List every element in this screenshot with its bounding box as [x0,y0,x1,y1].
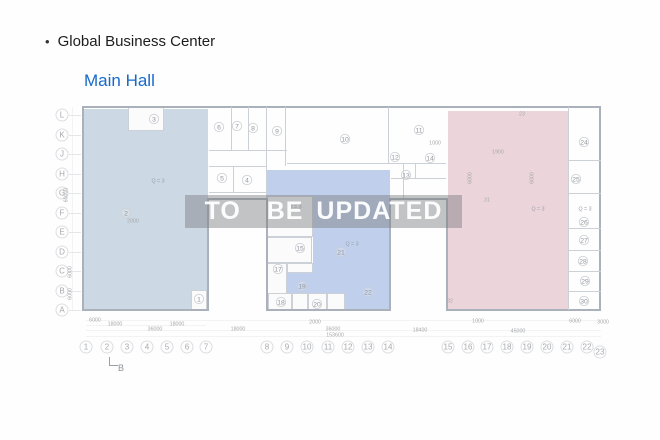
section-marker-arrow [109,365,118,366]
wall-segment [209,192,266,193]
wall-segment [446,309,601,311]
room-number: 30 [579,296,589,306]
grid-row-label: A [56,304,69,317]
dimension-text: 6000 [67,266,72,278]
dimension-text: 1000 [429,140,441,145]
grid-column-label: 5 [161,341,174,354]
wall-segment [209,150,287,151]
grid-row-label: K [56,128,69,141]
grid-column-label: 15 [442,341,455,354]
grid-column-label: 10 [301,341,314,354]
area-label: Q = 3 [345,241,358,246]
grid-column-label: 22 [581,341,594,354]
grid-column-label: 12 [342,341,355,354]
room-number: 21 [336,247,346,257]
wall-segment [209,166,266,167]
dimension-text: 6000 [89,317,101,322]
plan-label: 31 [484,197,490,202]
wall-segment [285,107,286,166]
dimension-line [86,320,601,321]
dimension-text: 2000 [127,218,139,223]
room-number: 28 [578,256,588,266]
room-number: 25 [571,174,581,184]
grid-row-line [69,154,81,155]
dimension-text: 153600 [326,332,344,337]
dimension-line [72,107,73,311]
wall-segment [391,178,446,179]
wall-segment [233,166,234,192]
wall-segment [568,107,569,310]
room-number: 29 [580,276,590,286]
grid-row-label: D [56,245,69,258]
dimension-text: 45000 [511,328,526,333]
grid-row-line [69,174,81,175]
grid-row-label: J [56,148,69,161]
room-outline [327,293,345,310]
room-number: 12 [390,152,400,162]
grid-row-label: H [56,167,69,180]
floor-plan: LKJHGFEDCBA12345678910111213141516171819… [0,0,660,440]
dimension-text: 2000 [309,319,321,324]
wall-segment [266,309,391,311]
grid-column-label: 18 [501,341,514,354]
grid-row-line [69,310,81,311]
room-number: 22 [363,287,373,297]
grid-row-label: E [56,226,69,239]
room-outline [292,293,308,310]
room-number: 11 [414,125,424,135]
grid-column-label: 7 [200,341,213,354]
room-number: 13 [401,170,411,180]
room-number: 6 [214,122,224,132]
wall-segment [568,193,601,194]
plan-label: 23 [519,111,525,116]
grid-column-label: 11 [322,341,335,354]
room-number: 20 [312,299,322,309]
section-marker-label: B [118,363,124,373]
grid-row-line [69,193,81,194]
grid-column-label: 19 [521,341,534,354]
wall-segment [568,228,601,229]
grid-row-line [69,232,81,233]
dimension-text: 18400 [413,327,428,332]
dimension-text: 6000 [529,172,534,184]
dimension-text: 36000 [148,326,163,331]
room-number: 8 [248,123,258,133]
grid-column-label: 21 [561,341,574,354]
grid-row-label: F [56,206,69,219]
watermark-text: TO BE UPDATED [205,197,443,226]
area-label: Q = 3 [531,206,544,211]
wall-segment [403,163,404,198]
room-number: 9 [272,126,282,136]
dimension-text: 60000 [63,188,68,203]
room-number: 1 [194,294,204,304]
room-number: 3 [149,114,159,124]
room-number: 4 [242,175,252,185]
middle-hall-region [345,295,390,310]
dimension-text: 1000 [472,318,484,323]
dimension-text: 18000 [231,326,246,331]
grid-column-label: 20 [541,341,554,354]
room-number: 27 [579,235,589,245]
wall-segment [568,250,601,251]
room-number: 26 [579,217,589,227]
dimension-text: 18000 [108,321,123,326]
room-outline [267,237,312,263]
grid-column-label: 1 [80,341,93,354]
grid-column-label: 23 [594,346,607,359]
grid-column-label: 16 [462,341,475,354]
room-number: 18 [276,297,286,307]
room-number: 10 [340,134,350,144]
dimension-text: 1900 [492,149,504,154]
dimension-text: 6000 [569,318,581,323]
area-label: Q = 3 [578,206,591,211]
wall-segment [82,106,601,108]
dimension-text: 6000 [467,172,472,184]
screenshot-root: • Global Business Center Main Hall LKJHG… [0,0,660,440]
room-number: 5 [217,173,227,183]
wall-segment [568,271,601,272]
grid-column-label: 4 [141,341,154,354]
room-number: 14 [425,153,435,163]
grid-row-line [69,252,81,253]
wall-segment [415,163,416,178]
room-number: 17 [273,264,283,274]
grid-row-label: L [56,109,69,122]
room-outline [287,263,313,273]
grid-row-line [69,213,81,214]
grid-column-label: 8 [261,341,274,354]
watermark-band: TO BE UPDATED [185,195,462,228]
dimension-text: 18000 [170,321,185,326]
room-number: 15 [295,243,305,253]
dimension-text: 3000 [597,319,609,324]
room-number: 7 [232,121,242,131]
wall-segment [82,106,84,311]
grid-column-label: 13 [362,341,375,354]
wall-segment [568,291,601,292]
wall-segment [287,163,446,164]
wall-segment [599,106,601,311]
area-label: Q = 3 [151,178,164,183]
grid-column-label: 17 [481,341,494,354]
room-number: 19 [297,281,307,291]
wall-segment [568,160,601,161]
grid-column-label: 14 [382,341,395,354]
room-number: 24 [579,137,589,147]
dimension-text: 6000 [67,288,72,300]
grid-column-label: 2 [101,341,114,354]
middle-hall-region [267,170,390,196]
right-hall-region [448,111,568,309]
grid-row-line [69,135,81,136]
grid-column-label: 9 [281,341,294,354]
wall-segment [388,107,389,163]
room-number: 2 [121,208,131,218]
grid-column-label: 6 [181,341,194,354]
grid-column-label: 3 [121,341,134,354]
wall-segment [82,309,209,311]
grid-row-line [69,115,81,116]
wall-segment [266,107,267,198]
plan-label: 32 [447,298,453,303]
dimension-line [86,325,206,326]
